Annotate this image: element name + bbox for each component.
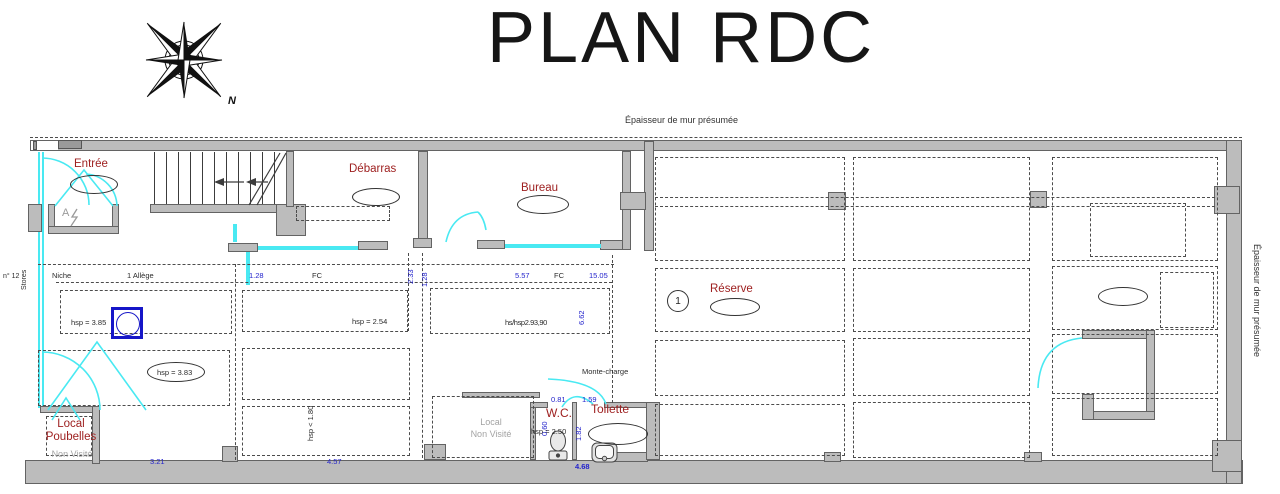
door-swing-arc [1038, 338, 1082, 388]
annotation-monte-charge: Monte-charge [582, 367, 628, 376]
dimension: 1.82 [574, 426, 583, 441]
annotation-fc: FC [312, 271, 322, 280]
annotation-allege: 1 Allège [127, 271, 154, 280]
room-label-local-non-visite: Local Non Visité [455, 417, 527, 440]
dimension: 2.33 [406, 269, 415, 284]
room-label-debarras: Débarras [349, 163, 396, 175]
zone-marker: 1 [667, 290, 689, 312]
stair-marks [216, 153, 286, 205]
appliance-icon [111, 307, 143, 339]
door-swing-line [52, 398, 80, 420]
room-ellipse [352, 188, 400, 206]
door-swing-line [48, 342, 146, 410]
status-non-visite: Non Visité [44, 449, 100, 459]
annotation-stores: Stores [21, 270, 28, 290]
dimension: 1.59 [582, 395, 597, 404]
dimension: 0.81 [551, 395, 566, 404]
dimension: 5.57 [515, 271, 530, 280]
dimension: 15.05 [589, 271, 608, 280]
dimension: 0.60 [540, 421, 549, 436]
electrical-panel-icon: A [62, 207, 69, 219]
door-swing-arc [42, 352, 100, 410]
annotation-hsp: hsp = 3.83 [157, 368, 192, 377]
room-label-bureau: Bureau [521, 182, 558, 194]
lightning-bolt-icon [71, 209, 77, 226]
annotation-niche: Niche [52, 271, 71, 280]
dimension: 3.21 [150, 457, 165, 466]
dimension: 4.68 [575, 462, 590, 471]
room-ellipse [710, 298, 760, 316]
annotation-n12: n° 12 [3, 273, 19, 280]
room-label-entree: Entrée [74, 158, 108, 170]
room-ellipse [70, 175, 118, 194]
annotation-fc: FC [554, 271, 564, 280]
room-ellipse [1098, 287, 1148, 306]
dimension: 6.62 [577, 310, 586, 325]
door-swing-arc [478, 212, 486, 230]
dimension: 1.28 [420, 272, 429, 287]
annotation-hsp: hsp < 1.80 [306, 406, 315, 441]
annotation-hsp-overlap: hs/hsp2.93,90 [505, 318, 547, 327]
room-ellipse [588, 423, 648, 445]
room-label-toilette: Toilette [591, 402, 629, 416]
sink-icon [592, 443, 617, 462]
room-label-wc: W.C. [546, 406, 572, 420]
room-ellipse [517, 195, 569, 214]
floor-plan-page: PLAN RDC N Épaisseur de mur présumée Épa… [0, 0, 1280, 494]
room-label-local-poubelles: Local Poubelles [40, 418, 102, 444]
door-swing-arc [446, 212, 478, 242]
annotation-hsp: hsp = 3.85 [71, 318, 106, 327]
annotation-hsp: hsp = 2.54 [352, 317, 387, 326]
dimension: 1.28 [249, 271, 264, 280]
room-label-reserve: Réserve [710, 283, 753, 295]
dimension: 4.57 [327, 457, 342, 466]
door-swings-overlay [0, 0, 1280, 494]
